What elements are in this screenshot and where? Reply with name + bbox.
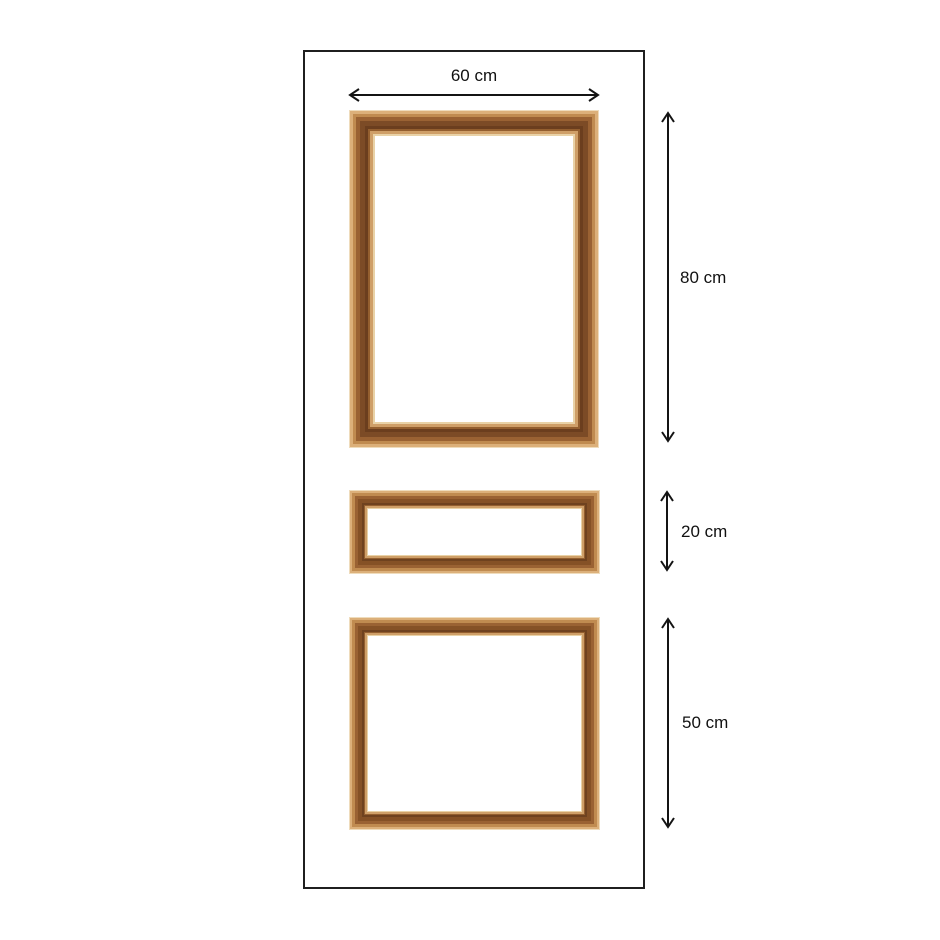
dimension-label-bottom-frame-height: 50 cm bbox=[682, 713, 728, 733]
bottom-panel-frame bbox=[349, 617, 600, 830]
dimension-label-middle-frame-height: 20 cm bbox=[681, 522, 727, 542]
vertical-dimension-arrow-20cm bbox=[659, 488, 675, 574]
middle-panel-frame bbox=[349, 490, 600, 574]
horizontal-dimension-arrow-60cm bbox=[346, 87, 602, 103]
diagram-canvas: 60 cm 80 cm 20 cm 50 cm bbox=[0, 0, 940, 940]
vertical-dimension-arrow-50cm bbox=[660, 615, 676, 831]
dimension-label-top-frame-height: 80 cm bbox=[680, 268, 726, 288]
top-panel-frame bbox=[349, 110, 599, 448]
vertical-dimension-arrow-80cm bbox=[660, 109, 676, 445]
dimension-label-top-width: 60 cm bbox=[346, 66, 602, 86]
